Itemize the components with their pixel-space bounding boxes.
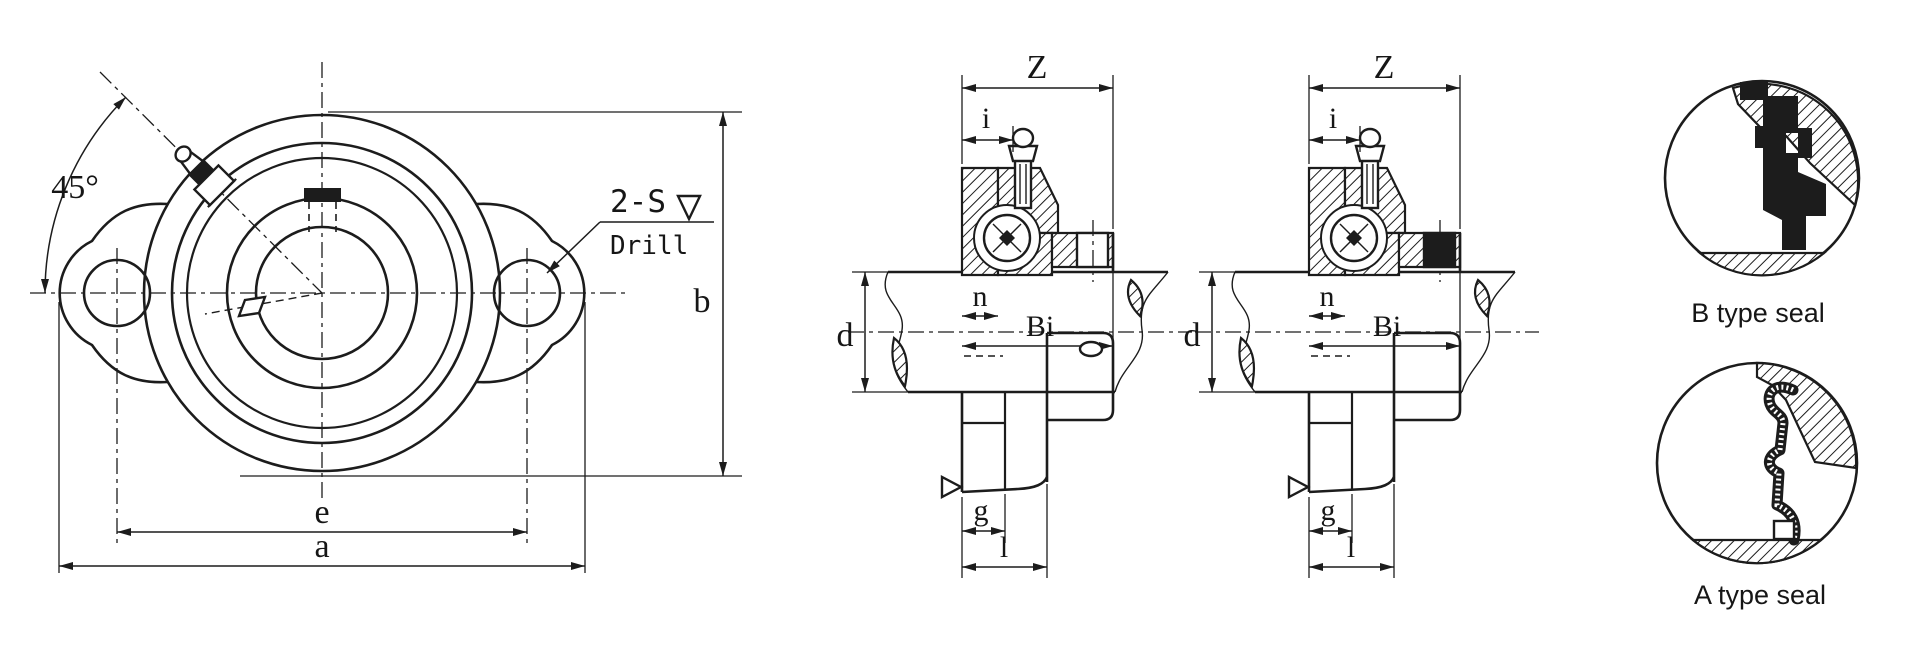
b-seal-label: B type seal xyxy=(1691,298,1825,328)
engineering-drawing-page: Z i n Bi d g l xyxy=(0,0,1929,657)
seal-detail-a: A type seal xyxy=(1657,363,1857,610)
drill-note: 2-S Drill xyxy=(547,184,714,273)
set-screw-solid xyxy=(1425,234,1454,266)
section-view-1 xyxy=(837,49,1193,578)
seal-detail-b: B type seal xyxy=(1665,81,1859,328)
front-view: 45° 2-S Drill b e a xyxy=(30,62,742,573)
drill-note-top: 2-S xyxy=(610,184,666,220)
flange-slot xyxy=(1080,342,1102,356)
section-view-2 xyxy=(1184,49,1540,578)
drill-note-bottom: Drill xyxy=(610,231,688,261)
keyway-mark xyxy=(304,188,341,202)
a-seal-label: A type seal xyxy=(1694,580,1826,610)
dim-label-b: b xyxy=(694,283,711,320)
bearing-unit-technical-drawing: Z i n Bi d g l xyxy=(0,0,1929,657)
angle-label: 45° xyxy=(51,169,99,206)
dim-label-e: e xyxy=(314,494,329,531)
surface-finish-triangle xyxy=(678,196,700,219)
dim-label-a: a xyxy=(314,528,329,565)
